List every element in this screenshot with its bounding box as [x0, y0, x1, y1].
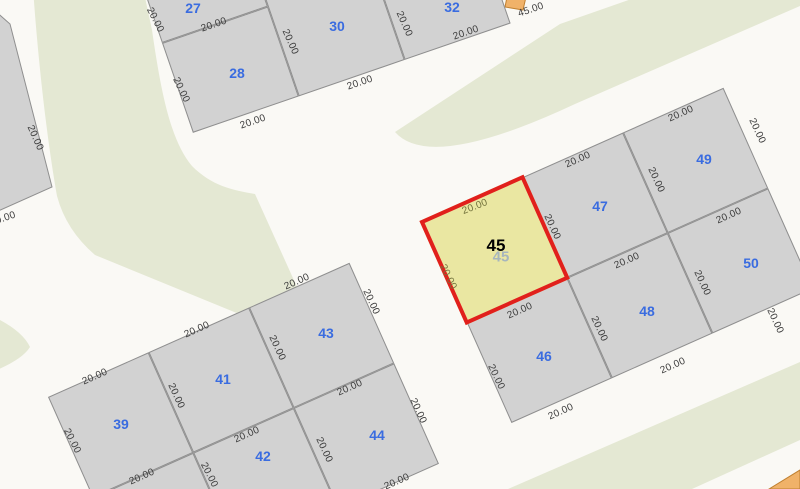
green-open-area-left-corner [0, 316, 30, 372]
lot-number-32: 32 [444, 0, 460, 15]
lot-number-27: 27 [185, 0, 201, 16]
lot-number-50: 50 [743, 255, 759, 271]
lot-number-49: 49 [696, 151, 712, 167]
cadastral-map[interactable]: 27 28 30 32 39 41 42 43 44 45 45 46 47 4… [0, 0, 800, 489]
lot-number-43: 43 [318, 325, 334, 341]
lot-number-28: 28 [229, 65, 245, 81]
lot-number-41: 41 [215, 371, 231, 387]
lot-number-42: 42 [255, 448, 271, 464]
lot-number-44: 44 [369, 427, 385, 443]
lot-number-30: 30 [329, 18, 345, 34]
lot-number-48: 48 [639, 303, 655, 319]
lot-number-39: 39 [113, 416, 129, 432]
lot-number-46: 46 [536, 348, 552, 364]
lot-number-45: 45 [487, 236, 506, 256]
orange-parcel-corner[interactable] [769, 470, 800, 489]
lot-number-47: 47 [592, 198, 608, 214]
